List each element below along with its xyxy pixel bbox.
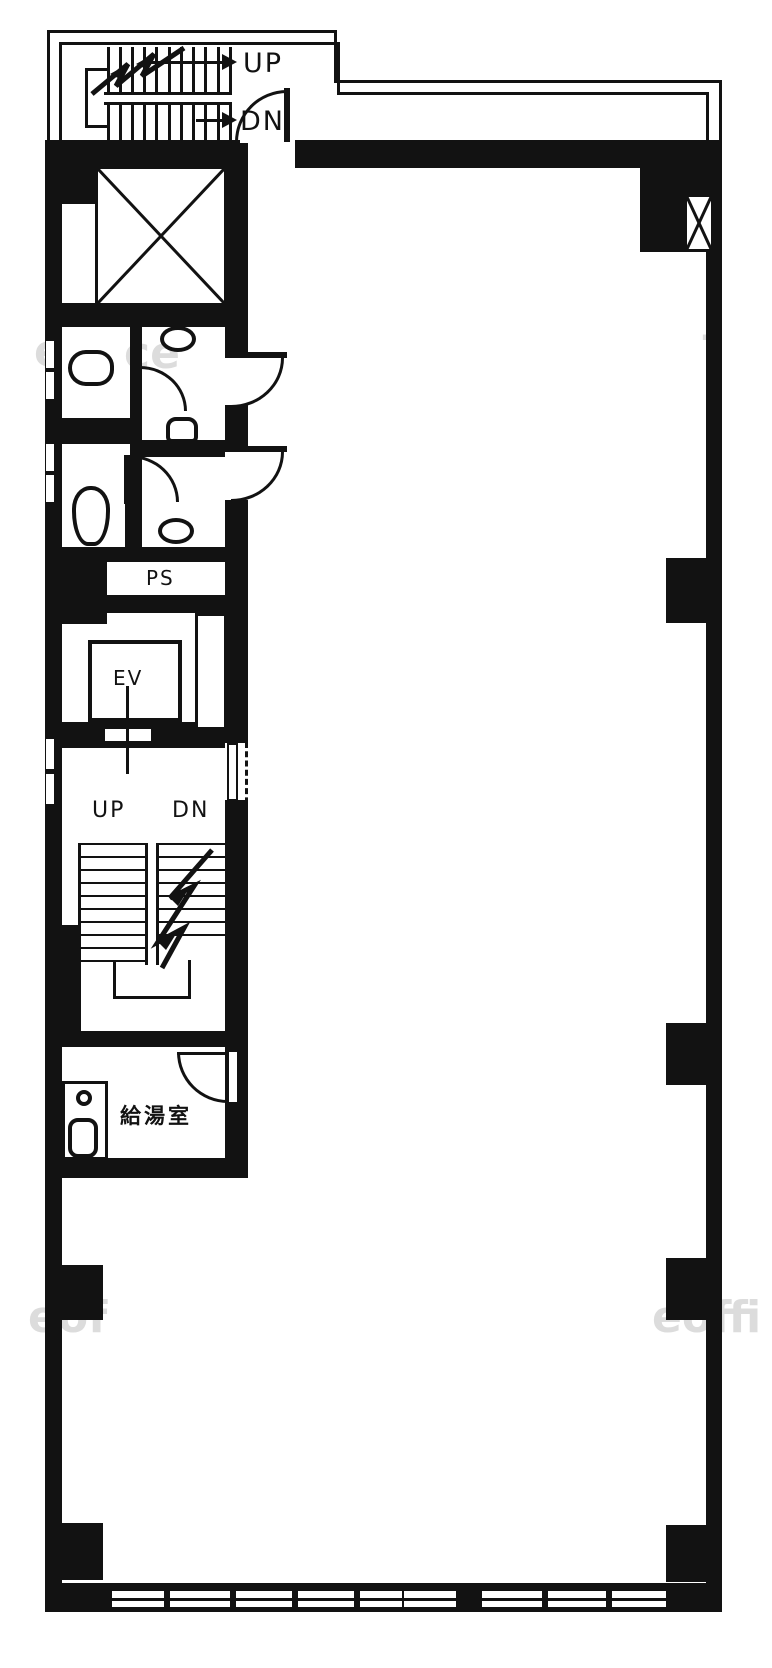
wall-line	[47, 30, 337, 33]
dn-arrow-icon	[222, 112, 237, 128]
door-arc	[177, 1052, 228, 1103]
stair-tread	[80, 882, 146, 884]
break-line-icon	[148, 842, 220, 970]
stair-line	[85, 125, 109, 128]
penthouse-up-label: UP	[243, 48, 283, 79]
pillar	[666, 1023, 712, 1085]
wall-segment	[45, 168, 97, 204]
wall-slit-window	[46, 475, 54, 502]
wall-line	[59, 42, 62, 140]
parapet-line	[719, 80, 722, 143]
wall-slit-window	[46, 444, 54, 471]
pipe-shaft-label: PS	[146, 566, 175, 590]
window-strip	[360, 1589, 402, 1609]
window-strip	[404, 1589, 456, 1609]
wall-slit-window	[46, 739, 54, 769]
pillar	[45, 1265, 103, 1320]
duct-box	[684, 194, 714, 252]
burner-fixture	[76, 1090, 92, 1106]
stair-tread	[80, 895, 146, 897]
wall-line	[337, 42, 340, 95]
window-strip	[482, 1589, 542, 1609]
urinal-fixture	[166, 417, 198, 443]
door-arc	[231, 358, 284, 408]
toilet-fixture	[68, 350, 114, 386]
window-strip	[548, 1589, 606, 1609]
stair-tread	[80, 908, 146, 910]
door-arc	[231, 452, 284, 502]
window-strip	[298, 1589, 354, 1609]
elevator-side-shaft	[195, 613, 227, 730]
hall-door-slit	[227, 743, 238, 801]
wall-segment	[58, 1031, 225, 1047]
stair-tread	[80, 947, 146, 949]
stair-tread	[80, 869, 146, 871]
door-arc	[140, 366, 187, 411]
break-line-icon	[88, 40, 188, 102]
wall-segment	[225, 500, 248, 743]
kitchenette-label: 給湯室	[120, 1100, 192, 1130]
door-arc	[235, 90, 287, 142]
parapet-line	[337, 92, 709, 95]
shaft-room	[95, 166, 227, 306]
wall-segment	[45, 556, 107, 624]
wall-segment	[58, 418, 132, 444]
floor-plan: e ce f eof eoffi UP DN	[0, 0, 772, 1668]
wall-line	[78, 843, 81, 1033]
wall-segment	[45, 140, 240, 168]
wall-line	[47, 30, 50, 142]
stair-tread	[80, 921, 146, 923]
toilet-fixture	[72, 486, 110, 546]
stairs-up-label: UP	[92, 798, 125, 823]
window-strip	[112, 1589, 164, 1609]
wall-slit-window	[46, 774, 54, 804]
stair-tread	[80, 856, 146, 858]
pillar	[666, 1258, 712, 1320]
wall-segment	[58, 303, 225, 327]
parapet-line	[334, 80, 722, 83]
elevator-door-line	[126, 686, 129, 774]
window-strip	[170, 1589, 230, 1609]
wall-segment	[58, 1158, 225, 1178]
stair-tread	[80, 934, 146, 936]
wall-slit-window	[46, 372, 54, 399]
stair-line	[113, 996, 191, 999]
wall-segment	[58, 925, 78, 1033]
door-arc	[130, 455, 179, 502]
stairs-dn-label: DN	[172, 798, 209, 823]
dashed-projection-line	[245, 742, 248, 868]
up-arrow-icon	[222, 54, 237, 70]
pillar	[45, 1523, 103, 1580]
door-leaf	[284, 88, 290, 142]
basin-fixture	[158, 518, 194, 544]
door-leaf	[227, 1050, 239, 1104]
pillar	[666, 1525, 712, 1582]
wall-segment	[706, 143, 722, 1612]
stair-line	[113, 960, 116, 998]
sink-fixture	[68, 1118, 98, 1158]
dn-arrow-line	[196, 119, 224, 122]
pillar	[666, 558, 712, 623]
stair-tread	[80, 843, 146, 845]
parapet-line	[706, 92, 709, 143]
wall-segment	[107, 595, 225, 613]
window-strip	[236, 1589, 292, 1609]
window-strip	[612, 1589, 666, 1609]
wall-segment	[225, 143, 248, 358]
wall-slit-window	[46, 341, 54, 368]
wall-segment	[225, 405, 248, 452]
basin-fixture	[160, 326, 196, 352]
up-arrow-line	[150, 61, 222, 64]
